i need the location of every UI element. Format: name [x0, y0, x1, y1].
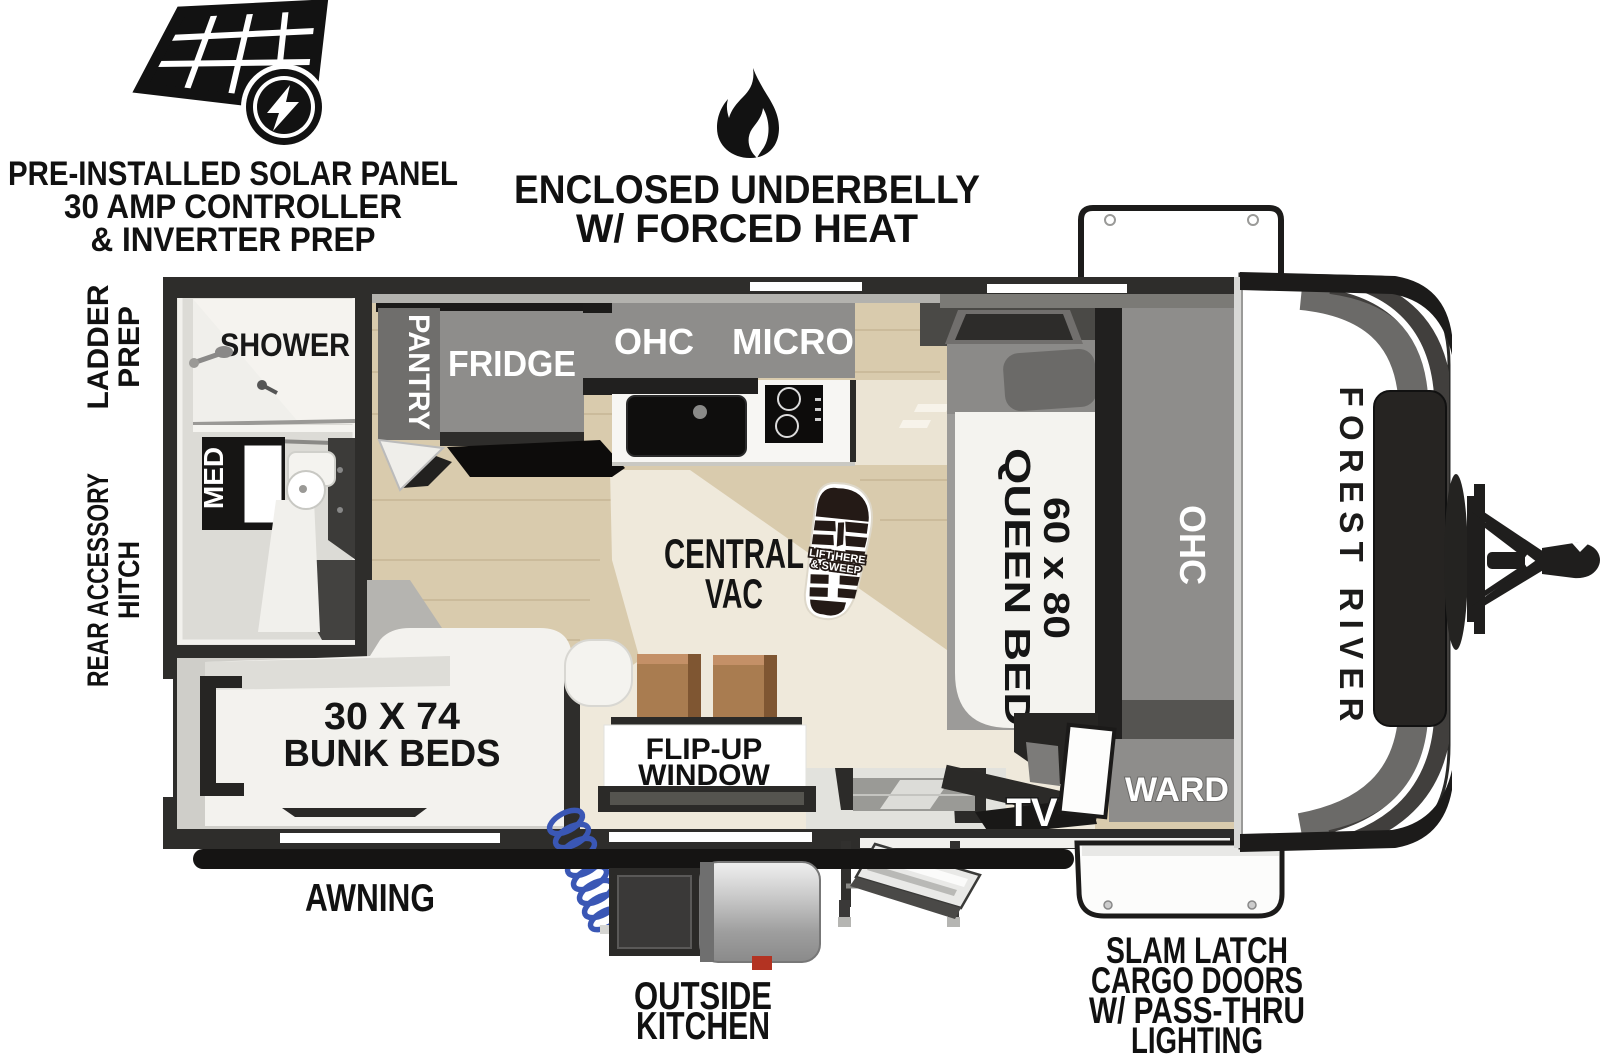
svg-text:MICRO: MICRO	[732, 321, 854, 362]
svg-text:MED: MED	[198, 447, 229, 509]
svg-text:W/ FORCED HEAT: W/ FORCED HEAT	[576, 207, 918, 251]
svg-text:VAC: VAC	[705, 570, 763, 617]
svg-text:QUEEN BED: QUEEN BED	[997, 448, 1038, 726]
svg-text:LADDER: LADDER	[82, 284, 115, 409]
svg-text:REAR ACCESSORY: REAR ACCESSORY	[82, 473, 115, 687]
svg-text:60 x 80: 60 x 80	[1036, 497, 1077, 639]
svg-text:SHOWER: SHOWER	[220, 327, 350, 363]
svg-text:LIGHTING: LIGHTING	[1131, 1020, 1263, 1059]
svg-text:FRIDGE: FRIDGE	[448, 343, 576, 384]
svg-text:PANTRY: PANTRY	[402, 314, 435, 430]
svg-text:WARD: WARD	[1125, 771, 1229, 809]
svg-text:30 X 74: 30 X 74	[324, 696, 460, 738]
svg-text:OHC: OHC	[614, 321, 694, 362]
svg-text:BUNK BEDS: BUNK BEDS	[284, 733, 501, 775]
svg-text:KITCHEN: KITCHEN	[636, 1005, 770, 1048]
svg-text:AWNING: AWNING	[305, 877, 435, 920]
svg-text:& INVERTER PREP: & INVERTER PREP	[91, 221, 376, 259]
svg-text:TV: TV	[1006, 791, 1057, 835]
svg-text:FOREST RIVER: FOREST RIVER	[1333, 387, 1370, 722]
svg-text:OHC: OHC	[1172, 505, 1213, 585]
svg-text:HITCH: HITCH	[113, 541, 146, 619]
svg-text:ENCLOSED UNDERBELLY: ENCLOSED UNDERBELLY	[514, 168, 980, 212]
svg-text:PREP: PREP	[113, 306, 146, 388]
